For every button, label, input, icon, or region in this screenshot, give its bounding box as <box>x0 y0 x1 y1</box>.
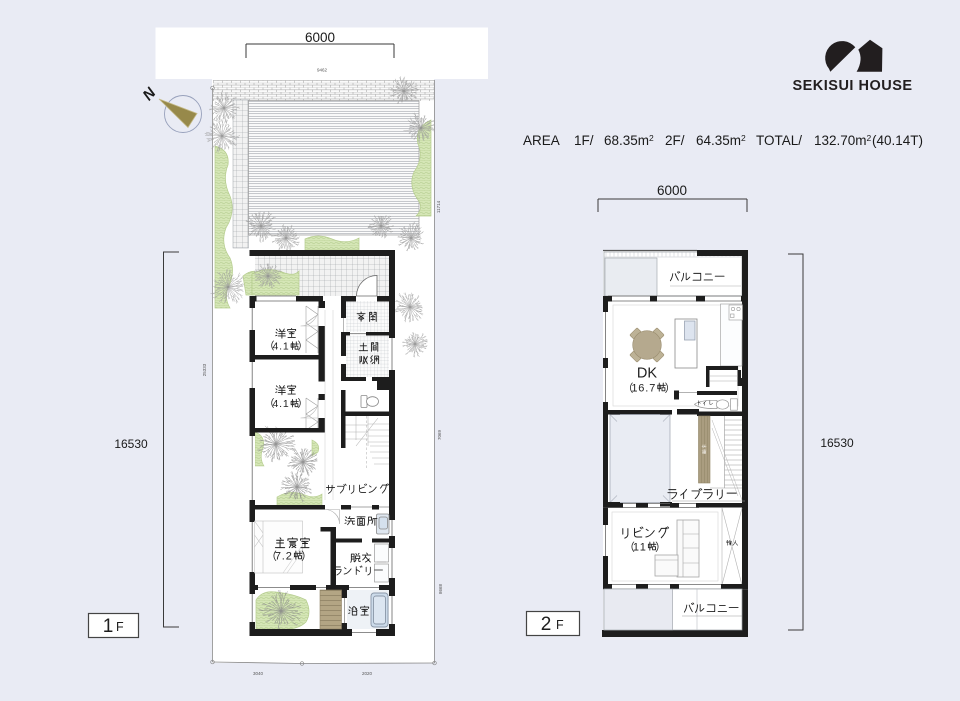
svg-text:16530: 16530 <box>820 436 854 450</box>
svg-text:1F/: 1F/ <box>574 133 594 148</box>
svg-text:6000: 6000 <box>305 30 335 45</box>
svg-text:16530: 16530 <box>114 437 148 451</box>
svg-text:AREA: AREA <box>523 133 560 148</box>
svg-text:1: 1 <box>103 616 114 637</box>
svg-text:6000: 6000 <box>657 183 687 198</box>
svg-text:25333: 25333 <box>202 363 207 376</box>
svg-text:1: 1 <box>633 541 639 553</box>
svg-text:6: 6 <box>638 382 644 394</box>
svg-text:7069: 7069 <box>437 429 442 440</box>
svg-text:.: . <box>282 550 285 562</box>
svg-text:4: 4 <box>272 398 278 410</box>
svg-text:DK: DK <box>637 366 657 382</box>
svg-text:）: ） <box>655 540 666 553</box>
svg-text:.: . <box>279 341 282 353</box>
svg-text:1: 1 <box>631 382 637 394</box>
svg-text:3040: 3040 <box>253 671 264 676</box>
svg-text:F: F <box>116 620 124 634</box>
svg-text:2020: 2020 <box>362 671 373 676</box>
svg-text:）: ） <box>665 381 676 394</box>
svg-text:7: 7 <box>275 550 281 562</box>
svg-text:68.35m2: 68.35m2 <box>604 133 654 149</box>
svg-text:F: F <box>556 618 564 632</box>
svg-text:2: 2 <box>286 550 292 562</box>
svg-text:）: ） <box>298 341 309 353</box>
svg-text:1: 1 <box>640 541 646 553</box>
svg-text:11714: 11714 <box>436 200 441 213</box>
svg-text:1: 1 <box>283 398 289 410</box>
svg-text:7: 7 <box>649 382 655 394</box>
svg-text:TOTAL/: TOTAL/ <box>756 133 802 148</box>
svg-text:2F/: 2F/ <box>665 133 685 148</box>
svg-text:8668: 8668 <box>438 583 443 594</box>
svg-text:）: ） <box>301 549 312 562</box>
svg-text:132.70m2: 132.70m2 <box>814 133 872 149</box>
svg-text:SEKISUI HOUSE: SEKISUI HOUSE <box>792 78 912 94</box>
svg-text:.: . <box>279 398 282 410</box>
svg-text:2: 2 <box>541 614 552 635</box>
svg-text:1: 1 <box>283 341 289 353</box>
svg-text:.: . <box>645 382 648 394</box>
svg-text:9462: 9462 <box>317 68 328 73</box>
svg-text:）: ） <box>298 398 309 410</box>
svg-text:(40.14T): (40.14T) <box>872 133 923 148</box>
svg-text:4: 4 <box>272 341 278 353</box>
svg-text:64.35m2: 64.35m2 <box>696 133 746 149</box>
